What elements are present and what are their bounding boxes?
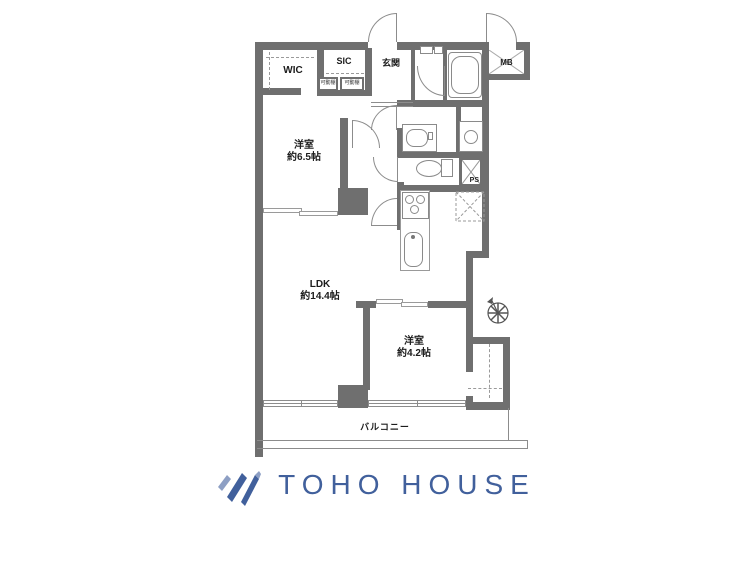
- sic-shelf-line: [326, 73, 364, 74]
- closet-dashed-line: [468, 388, 502, 389]
- window: [368, 400, 466, 407]
- stove-burner-icon: [405, 195, 414, 204]
- sic-label: SIC: [324, 56, 364, 66]
- toilet-tank-icon: [441, 159, 453, 177]
- wall-segment: [466, 251, 473, 372]
- movable-shelf: 可動棚: [340, 77, 364, 91]
- bedroom1-label: 洋室 約6.5帖: [262, 140, 346, 164]
- ldk-door-arc: [371, 198, 397, 226]
- movable-shelf: 可動棚: [318, 77, 338, 91]
- ldk-name: LDK: [278, 279, 362, 291]
- pipe-space: PS: [459, 157, 483, 187]
- wall-segment: [411, 48, 415, 102]
- washbasin-icon: [406, 129, 428, 147]
- toilet-door-arc: [373, 157, 398, 182]
- sliding-door: [376, 299, 403, 304]
- wall-segment: [466, 402, 510, 410]
- refrigerator-space: [455, 191, 485, 222]
- toilet-icon: [416, 160, 442, 177]
- genkan-step-line: [371, 102, 413, 103]
- window-line: [417, 401, 418, 406]
- balcony-edge: [257, 448, 528, 449]
- bedroom2-name: 洋室: [372, 336, 456, 348]
- closet-dashed-line: [489, 344, 490, 398]
- balcony-edge: [257, 440, 528, 441]
- wic-label: WIC: [270, 65, 316, 76]
- meter-box-door-arc: [486, 13, 517, 42]
- sliding-door: [401, 302, 428, 307]
- stove-burner-icon: [416, 195, 425, 204]
- brand-footer: TOHO HOUSE: [0, 455, 750, 515]
- toho-house-logo-icon: [214, 460, 264, 510]
- window: [263, 400, 338, 407]
- sliding-door: [299, 211, 338, 216]
- pillar: [338, 188, 368, 215]
- bedroom2-size: 約4.2帖: [372, 348, 456, 360]
- bedroom2-label: 洋室 約4.2帖: [372, 336, 456, 360]
- entrance-door-arc: [368, 13, 397, 42]
- wall-segment: [428, 301, 473, 308]
- compass-icon: [483, 296, 513, 326]
- counter-icon: [434, 46, 443, 54]
- meter-box-label: MB: [489, 58, 524, 67]
- ldk-label: LDK 約14.4帖: [278, 279, 362, 303]
- faucet-icon: [411, 235, 415, 239]
- pipe-space-label: PS: [470, 177, 479, 184]
- wall-segment: [365, 48, 372, 96]
- bathtub-icon: [451, 56, 479, 94]
- genkan-label: 玄関: [372, 56, 410, 69]
- window-line: [301, 401, 302, 406]
- balcony-edge: [508, 408, 509, 441]
- wic-hanger-pipe: [266, 57, 314, 58]
- counter-icon: [420, 46, 433, 54]
- stove-burner-icon: [410, 205, 419, 214]
- wall-segment: [483, 74, 530, 80]
- wall-segment: [363, 301, 370, 390]
- floor-plan: MB 可動棚 可動棚: [0, 0, 750, 563]
- wall-segment: [255, 42, 263, 457]
- brand-text: TOHO HOUSE: [278, 469, 536, 501]
- faucet-icon: [428, 132, 433, 140]
- sliding-door: [263, 208, 302, 213]
- balcony-label: バルコニー: [345, 420, 425, 433]
- ldk-size: 約14.4帖: [278, 291, 362, 303]
- bathroom-door-arc: [417, 66, 445, 96]
- wall-segment: [503, 337, 510, 410]
- wall-segment: [255, 42, 368, 50]
- washing-machine-icon: [464, 130, 478, 144]
- genkan-step-line: [371, 106, 413, 107]
- bedroom1-name: 洋室: [262, 140, 346, 152]
- balcony-edge: [527, 440, 528, 449]
- washroom-door-arc: [371, 105, 397, 130]
- wall-segment: [255, 88, 301, 95]
- bedroom1-size: 約6.5帖: [262, 152, 346, 164]
